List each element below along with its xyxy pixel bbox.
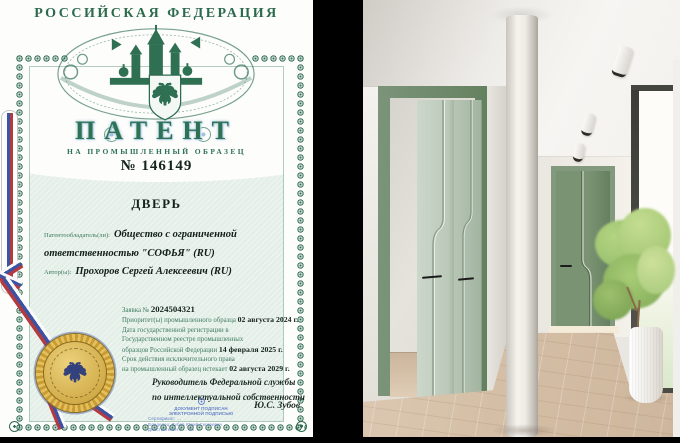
plant-foliage (637, 246, 675, 294)
signatory-role-line1: Руководитель Федеральной службы (152, 377, 295, 387)
application-label: Заявка № (122, 307, 149, 314)
registration-date: 14 февраля 2025 г. (219, 345, 283, 354)
term-line: Срок действия исключительного права (122, 355, 312, 364)
door-leaf (454, 100, 482, 412)
priority-row: Приоритет(ы) промышленного образца 02 ав… (122, 315, 312, 325)
registration-label: образцов Российской Федерации (122, 347, 217, 354)
plant-pot (629, 327, 663, 403)
country-header: РОССИЙСКАЯ ФЕДЕРАЦИЯ (0, 6, 313, 22)
application-row: Заявка № 2024504321 (122, 305, 312, 315)
priority-date: 02 августа 2024 г. (238, 315, 298, 324)
ornament-border-top-right (251, 54, 306, 64)
stamp-validity: Действителен с … по … (148, 427, 254, 432)
potted-plant (593, 208, 678, 437)
authors-label: Автор(ы): (44, 269, 71, 276)
door-handle (560, 265, 572, 267)
column-floor-shadow (491, 424, 557, 437)
term-row: на промышленный образец истекает 02 авгу… (122, 364, 312, 374)
application-number: 2024504321 (151, 304, 195, 314)
corner-swirl-icon (9, 421, 20, 432)
registration-line: Государственном реестре промышленных (122, 335, 312, 344)
digital-signature-stamp: ДОКУМЕНТ ПОДПИСАН ЭЛЕКТРОННОЙ ПОДПИСЬЮ С… (148, 398, 254, 432)
grant-details: Заявка № 2024504321 Приоритет(ы) промышл… (122, 305, 312, 375)
document-type-title: ПАТЕНТ (0, 116, 313, 146)
seal-eagle-icon (62, 359, 88, 385)
authors-row: Автор(ы): Прохоров Сергей Алексеевич (RU… (44, 261, 298, 280)
holder-label: Патентообладатель(ли): (44, 232, 110, 239)
door-groove-icon (417, 100, 456, 430)
patent-certificate: РОССИЙСКАЯ ФЕДЕРАЦИЯ (0, 0, 313, 437)
registration-line: Дата государственной регистрации в (122, 326, 312, 335)
corner-swirl-icon (296, 421, 307, 432)
term-date: 02 августа 2029 г. (229, 364, 289, 373)
door-leaf (417, 100, 457, 430)
patent-number: № 146149 (0, 158, 313, 175)
patent-holder-row: Патентообладатель(ли): Общество с ограни… (44, 224, 298, 263)
stamp-emblem-icon (198, 398, 205, 405)
round-column (506, 15, 538, 437)
screenshot-canvas: РОССИЙСКАЯ ФЕДЕРАЦИЯ (0, 0, 680, 443)
priority-label: Приоритет(ы) промышленного образца (122, 317, 236, 324)
door-groove-icon (454, 100, 481, 412)
design-title: ДВЕРЬ (0, 196, 313, 212)
document-subtype: НА ПРОМЫШЛЕННЫЙ ОБРАЗЕЦ (0, 147, 313, 156)
registration-row: образцов Российской Федерации 14 февраля… (122, 345, 312, 355)
interior-photo (363, 0, 680, 437)
gold-seal (36, 334, 114, 412)
authors-value: Прохоров Сергей Алексеевич (RU) (75, 266, 232, 277)
signature-name: Ю.С. Зубов (254, 401, 300, 411)
term-label: на промышленный образец истекает (122, 366, 228, 373)
